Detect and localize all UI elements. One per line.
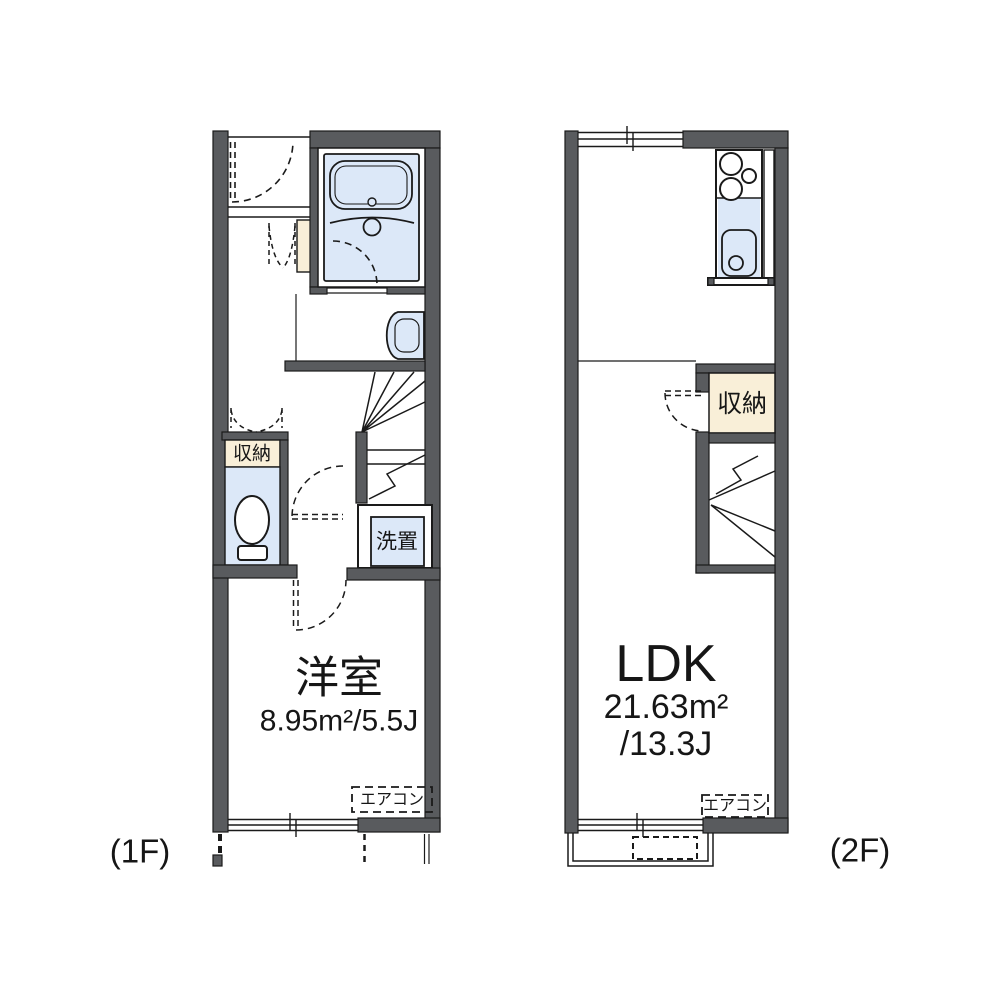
genkan-step-lines [228,207,310,217]
room-2f-area-line2: /13.3J [620,725,713,763]
wall-1f-top [310,131,440,148]
kitchen-counter-front [708,278,774,285]
sink-drain [729,256,743,270]
shoe-closet-door-arcs [269,226,295,268]
toilet-door-arc [292,466,343,517]
bath-faucet [364,219,381,236]
storage-1f-label: 収納 [233,443,271,465]
wall-stairs-2f-bottom [696,565,775,573]
wall-washroom-bottom [285,361,425,371]
wall-2f-left [565,131,578,833]
floorplan-page: 収納 洗置 洋室 8.95m²/5.5J エアコン (1F) [0,0,1000,999]
storage-2f-door-panel [665,391,703,396]
wall-storage-1f-top [222,432,288,440]
floor-1f: 収納 洗置 洋室 8.95m²/5.5J エアコン (1F) [110,131,440,870]
shoe-storage [297,220,311,272]
toilet-bowl [235,496,269,544]
stove-burner-1 [720,153,742,175]
bathroom-threshold [327,288,387,293]
aircon-1f-label: エアコン [360,792,424,809]
kitchen-side-panel [764,150,774,282]
storage-2f-door-arc [665,393,703,431]
floor-2f: 収納 LDK 21.63m² /13.3J エアコン (2F) [565,126,890,869]
shoe-closet-door-panels [269,223,295,266]
wall-1f-right [425,148,440,832]
bathtub-drain [368,198,376,206]
balcony-dashed-area [633,837,697,859]
porch-boundary-right [425,834,430,864]
room-1f-name: 洋室 [295,654,383,703]
entrance-door-arc [232,141,293,202]
wall-bathroom-bottom-left [310,287,327,294]
wall-bathroom-bottom-right [387,287,425,294]
wall-room-1f-top [347,568,440,580]
storage-1f-door-panels [231,408,282,428]
storage-1f-door-arcs [231,410,282,432]
storage-2f-label: 収納 [717,390,767,418]
stove-burner-3 [742,169,756,183]
wall-2f-bottom-right [703,818,788,833]
stairs-2f-winders [711,505,775,557]
room-2f-name: LDK [615,635,716,693]
stairs-1f-break-line [369,455,425,499]
floorplan-canvas: 収納 洗置 洋室 8.95m²/5.5J エアコン (1F) [0,0,1000,999]
floor-1f-label: (1F) [110,833,171,870]
stairs-1f-newel-wall [356,432,367,503]
wall-2f-right [775,148,788,832]
toilet-door-panel [292,515,343,520]
room-1f-door-arc [296,580,346,630]
aircon-2f-label: エアコン [703,798,767,815]
kitchen-counter-end-right [768,278,774,285]
wall-1f-bottom [358,818,440,832]
window-2f-top [578,133,683,147]
wall-toilet-right [280,440,288,565]
room-2f-area-line1: 21.63m² [604,688,729,726]
room-1f-area: 8.95m²/5.5J [260,705,418,738]
porch-post [213,855,222,866]
kitchen-counter-end-left [708,278,714,285]
wall-2f-top [683,131,788,148]
stove-burner-2 [720,178,742,200]
wall-stairs-2f-top [709,433,775,443]
balcony-railing [568,833,713,866]
room-1f-door-panel [294,580,299,630]
wall-toilet-bottom [213,565,297,578]
floor-2f-label: (2F) [830,832,891,869]
stairs-1f-winders [362,372,425,432]
toilet-tank [238,546,267,560]
stairs-2f-flight-edge [709,471,775,500]
laundry-label: 洗置 [376,531,418,554]
stairs-1f-treads [367,450,425,464]
wall-storage-2f-top [696,364,775,373]
window-2f-bottom [578,820,703,831]
entrance-door-panel [231,142,236,202]
wall-storage-2f-left-upper [696,373,709,392]
wall-storage-2f-left-lower [696,432,709,573]
window-1f-bottom [228,820,358,831]
